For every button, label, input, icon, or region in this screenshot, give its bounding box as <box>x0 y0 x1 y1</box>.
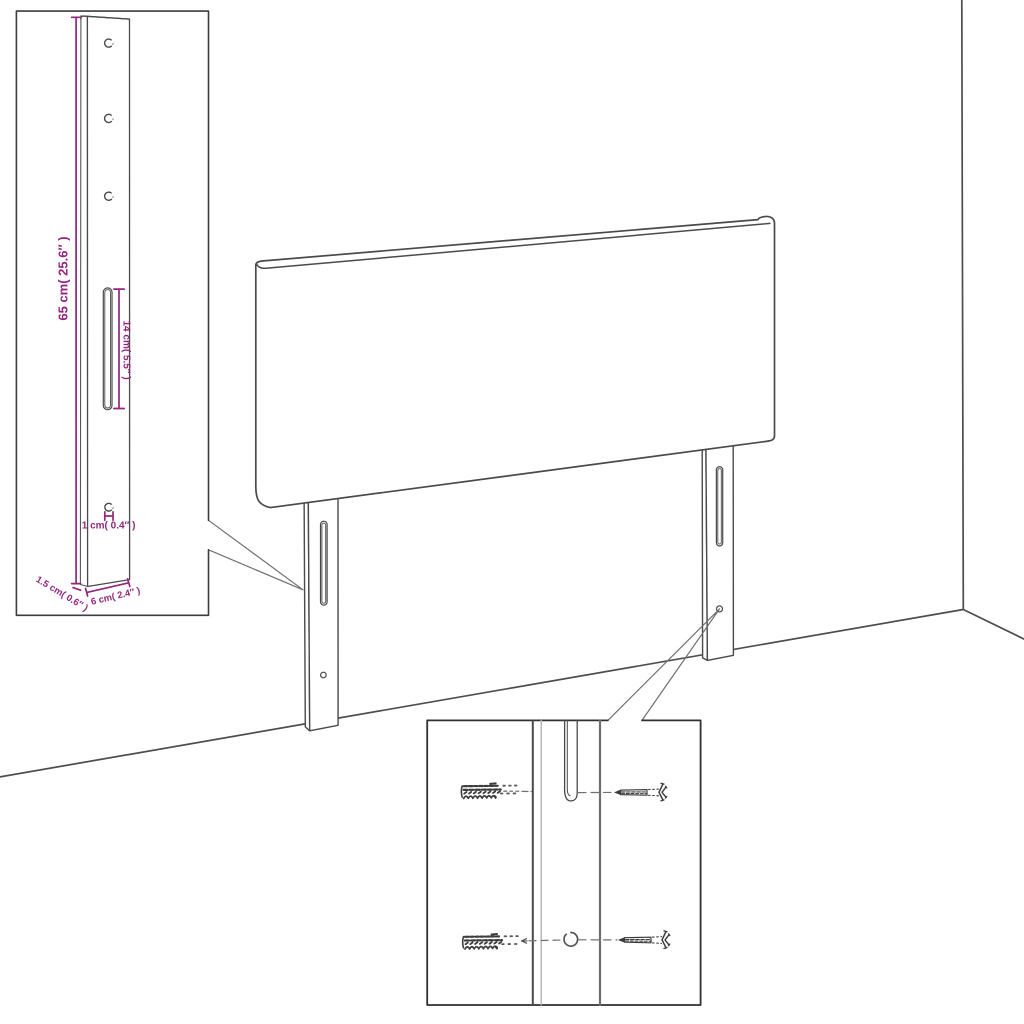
svg-text:1 cm( 0.4″ ): 1 cm( 0.4″ ) <box>82 520 136 531</box>
svg-text:65 cm( 25.6″ ): 65 cm( 25.6″ ) <box>56 236 71 320</box>
svg-text:14 cm( 5.5″ ): 14 cm( 5.5″ ) <box>120 320 131 379</box>
